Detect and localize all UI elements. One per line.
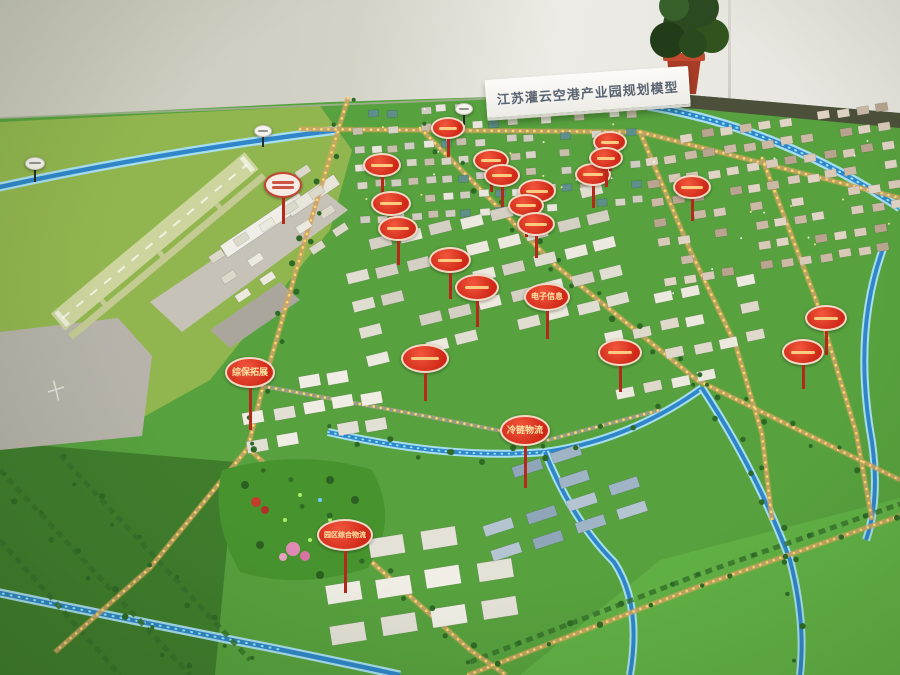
sign-oval (371, 191, 411, 216)
sign-oval (363, 153, 401, 177)
zone-sign-illegible (378, 216, 418, 265)
zone-sign-illegible (401, 344, 449, 401)
sign-oval (378, 216, 418, 241)
sign-text-blur (380, 202, 402, 205)
sign-oval: 冷链物流 (500, 415, 550, 446)
sign-pole (262, 137, 264, 147)
sign-pole (449, 273, 452, 299)
zone-sign-illegible (455, 274, 499, 327)
sign-pole (282, 198, 285, 224)
sign-text-blur (438, 259, 462, 262)
sign-text-blur (258, 130, 268, 132)
sign-pole (424, 373, 427, 401)
sign-label: 冷链物流 (507, 426, 543, 435)
sign-pole (397, 241, 400, 265)
sign-label: 园区综合物流 (324, 532, 366, 539)
zone-sign: 冷链物流 (500, 415, 550, 488)
sign-oval (782, 339, 824, 365)
sign-text-blur (411, 357, 438, 360)
sign-pole (344, 551, 347, 593)
sign-label: 综保拓展 (232, 368, 268, 377)
sign-oval (429, 247, 471, 273)
sign-text-blur (597, 157, 616, 160)
sign-pole (501, 187, 504, 207)
sign-oval (805, 305, 847, 331)
sign-text-blur (791, 351, 815, 354)
sign-text-blur (681, 186, 702, 189)
zone-sign-illegible (254, 125, 272, 147)
zone-sign-illegible (782, 339, 824, 389)
sign-pole (447, 139, 450, 157)
sign-oval: 综保拓展 (225, 357, 275, 388)
signs-layer: 电子信息综保拓展冷链物流园区综合物流 (0, 0, 900, 675)
sign-text-blur (525, 223, 546, 226)
sign-oval (589, 147, 623, 169)
sign-pole (691, 199, 694, 221)
sign-text-blur (459, 108, 469, 110)
sign-pole (546, 311, 549, 339)
zone-sign: 电子信息 (524, 283, 570, 339)
sign-oval (455, 274, 499, 301)
sign-oval (598, 339, 642, 366)
sign-oval (484, 164, 520, 187)
zone-sign-illegible (264, 172, 302, 224)
sign-text-blur (481, 159, 501, 162)
sign-oval (25, 157, 45, 170)
sign-pole (476, 301, 479, 327)
sign-text-blur (492, 174, 512, 177)
sign-pole (802, 365, 805, 389)
sign-pole (249, 388, 252, 430)
sign-oval (264, 172, 302, 198)
sign-oval: 电子信息 (524, 283, 570, 311)
sign-pole (524, 446, 527, 488)
sign-oval (673, 175, 711, 199)
sign-text-blur (608, 351, 633, 354)
photo-scale-model: 江苏灌云空港产业园规划模型 电子信息综保拓展冷链物流园区综合物流 (0, 0, 900, 675)
sign-text-blur (29, 162, 40, 164)
sign-text-blur (371, 164, 392, 167)
sign-pole (592, 186, 595, 208)
sign-text-blur (601, 141, 620, 144)
sign-text-blur (439, 127, 458, 130)
sign-pole (535, 236, 538, 258)
sign-text-blur (465, 286, 490, 289)
sign-oval (455, 103, 473, 115)
zone-sign-illegible (589, 147, 623, 187)
zone-sign-illegible (431, 117, 465, 157)
sign-oval: 园区综合物流 (317, 519, 373, 551)
sign-text-blur (516, 204, 536, 207)
zone-sign-illegible (517, 212, 555, 258)
zone-sign: 园区综合物流 (317, 519, 373, 593)
sign-pole (34, 170, 36, 182)
sign-text-blur (526, 190, 547, 193)
sign-label: 电子信息 (531, 293, 563, 301)
sign-pole (825, 331, 828, 355)
sign-oval (517, 212, 555, 236)
zone-sign-illegible (598, 339, 642, 392)
sign-text-blur (814, 317, 838, 320)
zone-sign-illegible (673, 175, 711, 221)
sign-pole (619, 366, 622, 392)
zone-sign-illegible (25, 157, 45, 182)
zone-sign: 综保拓展 (225, 357, 275, 430)
sign-text-blur (387, 227, 409, 230)
sign-oval (401, 344, 449, 373)
sign-oval (254, 125, 272, 137)
sign-text-blur (272, 181, 293, 184)
sign-pole (605, 169, 608, 187)
sign-oval (431, 117, 465, 139)
sign-text-blur (272, 186, 293, 189)
